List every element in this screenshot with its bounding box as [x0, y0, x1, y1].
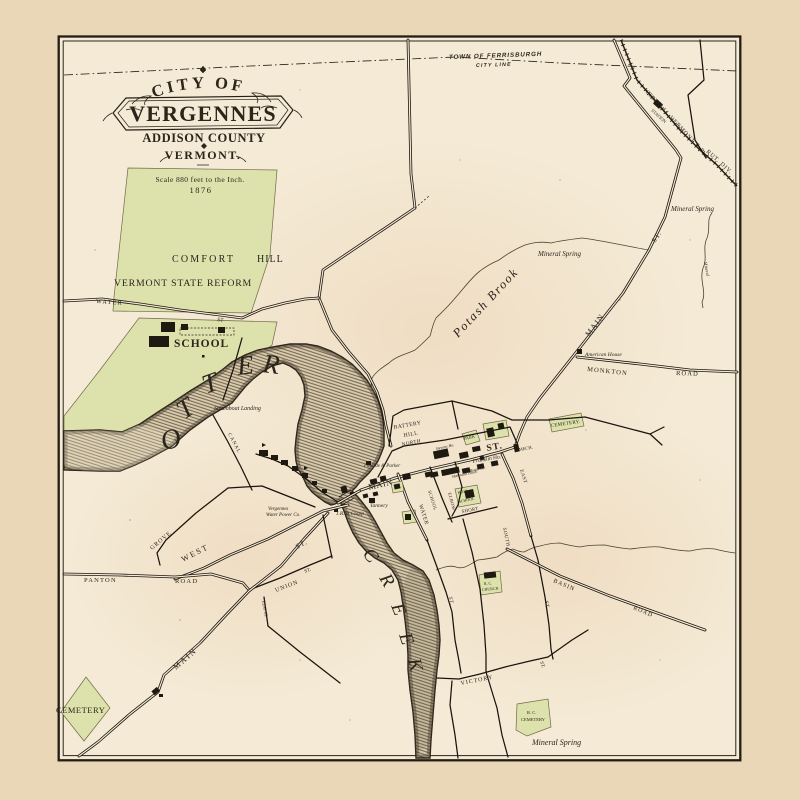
svg-text:Steamboat Landing: Steamboat Landing — [214, 406, 261, 412]
svg-text:J.R.M.Clapp: J.R.M.Clapp — [336, 511, 364, 517]
svg-text:VERGENNES: VERGENNES — [129, 101, 277, 126]
svg-text:Falarde & Parker: Falarde & Parker — [363, 464, 400, 469]
svg-text:R. C.: R. C. — [484, 580, 493, 586]
svg-text:CEMETERY: CEMETERY — [521, 717, 546, 722]
svg-text:American House: American House — [584, 352, 622, 358]
svg-text:Mineral Spring: Mineral Spring — [537, 250, 581, 258]
svg-text:Water Power Co.: Water Power Co. — [266, 513, 300, 518]
svg-text:COMFORT: COMFORT — [172, 254, 235, 265]
svg-text:CEMETERY: CEMETERY — [56, 705, 105, 715]
svg-text:1876: 1876 — [190, 185, 213, 195]
svg-text:Mineral Spring: Mineral Spring — [670, 205, 714, 213]
svg-text:VERMONT.: VERMONT. — [165, 148, 242, 162]
svg-text:ROAD: ROAD — [676, 370, 699, 378]
svg-text:E: E — [234, 349, 255, 381]
svg-text:R. C.: R. C. — [527, 710, 536, 715]
svg-text:Tannery: Tannery — [370, 503, 388, 509]
svg-text:Mineral Spring: Mineral Spring — [531, 738, 581, 747]
svg-text:CITY LINE: CITY LINE — [476, 62, 512, 69]
svg-text:Vergennes: Vergennes — [268, 507, 288, 512]
svg-text:HILL: HILL — [257, 254, 284, 265]
svg-text:VERMONT STATE REFORM: VERMONT STATE REFORM — [114, 278, 252, 289]
svg-text:ROAD: ROAD — [175, 578, 198, 585]
svg-text:PANTON: PANTON — [84, 577, 117, 584]
svg-text:ADDISON COUNTY: ADDISON COUNTY — [142, 131, 265, 145]
svg-text:SCHOOL: SCHOOL — [174, 338, 229, 350]
svg-text:Scale 880 feet to the Inch.: Scale 880 feet to the Inch. — [155, 175, 244, 184]
